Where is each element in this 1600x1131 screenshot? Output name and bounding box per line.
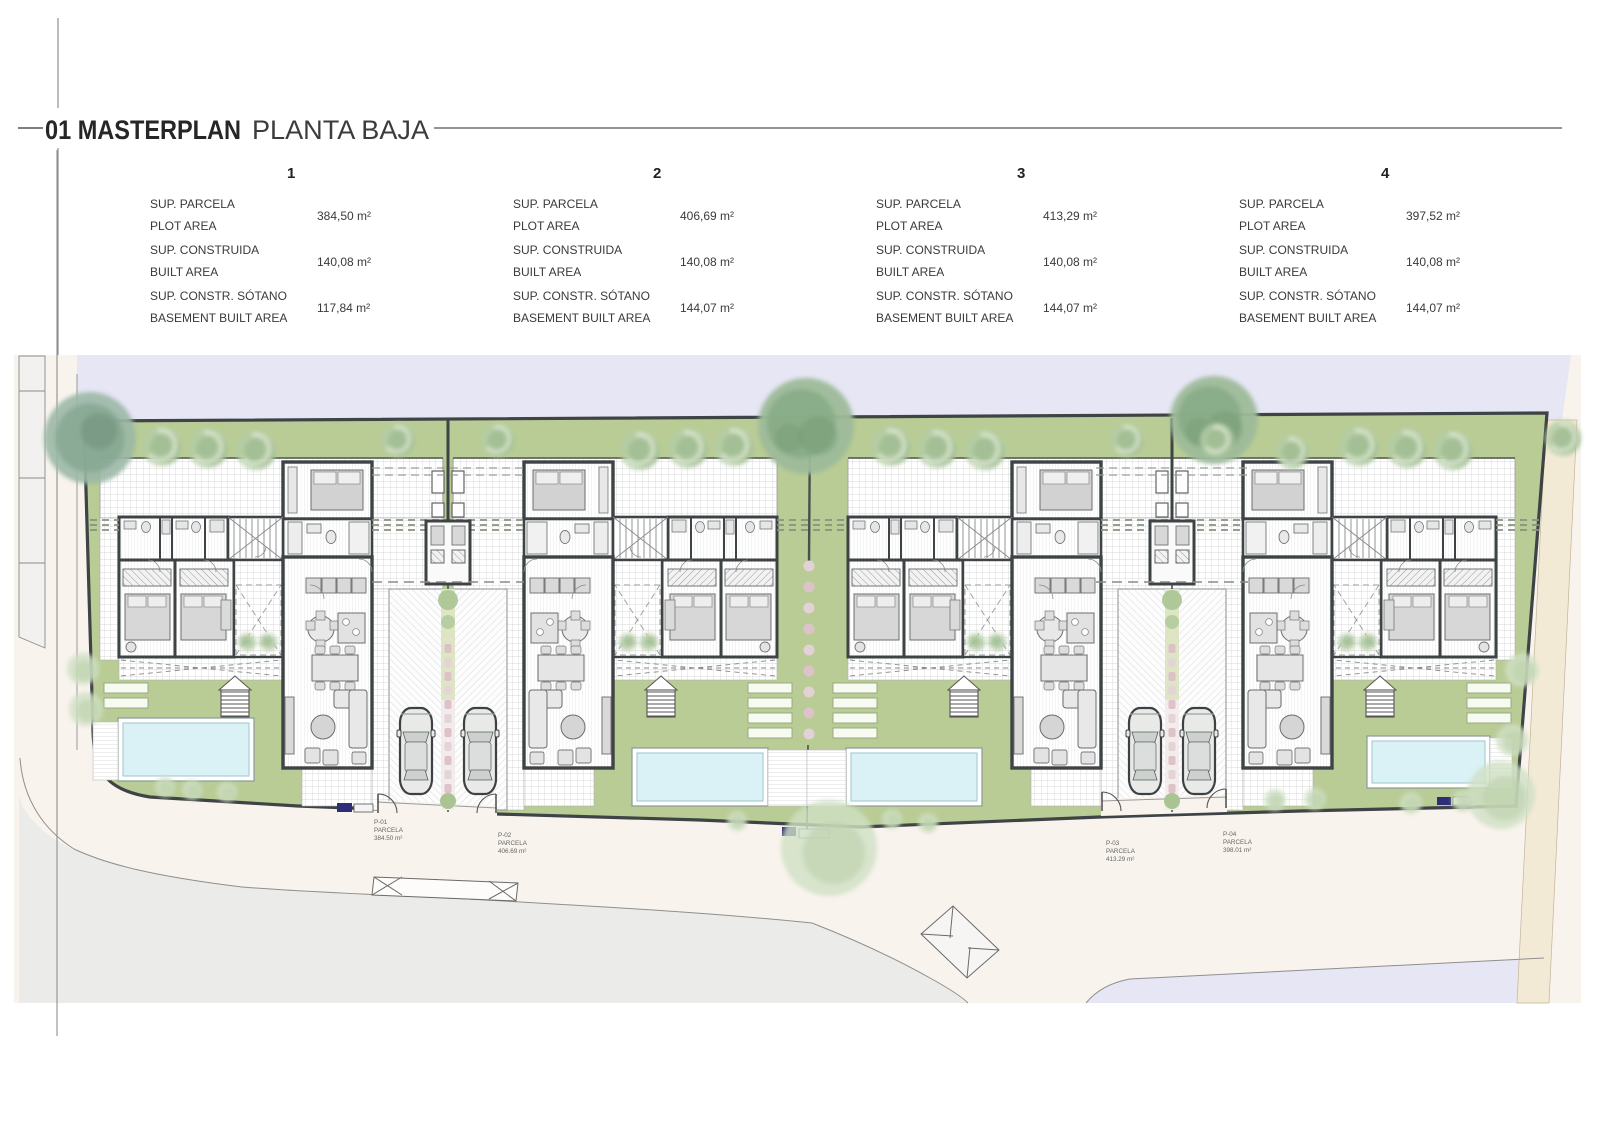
svg-text:SUP. PARCELA: SUP. PARCELA (513, 197, 598, 211)
svg-text:PARCELA: PARCELA (374, 827, 404, 834)
svg-text:SUP. CONSTR. SÓTANO: SUP. CONSTR. SÓTANO (876, 288, 1013, 303)
svg-text:413,29 m²: 413,29 m² (1043, 209, 1097, 223)
svg-text:SUP. CONSTRUIDA: SUP. CONSTRUIDA (150, 243, 259, 257)
svg-text:1: 1 (287, 165, 295, 182)
svg-text:SUP. CONSTR. SÓTANO: SUP. CONSTR. SÓTANO (150, 288, 287, 303)
svg-text:BASEMENT BUILT AREA: BASEMENT BUILT AREA (1239, 311, 1376, 325)
svg-text:413.29 m²: 413.29 m² (1106, 856, 1134, 863)
svg-text:SUP. CONSTR. SÓTANO: SUP. CONSTR. SÓTANO (513, 288, 650, 303)
svg-text:144,07 m²: 144,07 m² (1406, 301, 1460, 315)
svg-text:BUILT AREA: BUILT AREA (876, 265, 944, 279)
svg-text:BASEMENT BUILT AREA: BASEMENT BUILT AREA (150, 311, 287, 325)
svg-text:140,08 m²: 140,08 m² (680, 255, 734, 269)
svg-text:SUP. CONSTRUIDA: SUP. CONSTRUIDA (1239, 243, 1348, 257)
svg-text:PLOT AREA: PLOT AREA (1239, 219, 1305, 233)
svg-text:BUILT AREA: BUILT AREA (1239, 265, 1307, 279)
svg-text:397,52 m²: 397,52 m² (1406, 209, 1460, 223)
svg-text:117,84 m²: 117,84 m² (317, 301, 370, 315)
svg-text:P-02: P-02 (498, 832, 512, 839)
svg-text:2: 2 (653, 165, 661, 182)
svg-text:01 MASTERPLAN: 01 MASTERPLAN (45, 115, 241, 145)
svg-text:384,50 m²: 384,50 m² (317, 209, 371, 223)
svg-text:4: 4 (1381, 165, 1390, 182)
svg-text:144,07 m²: 144,07 m² (1043, 301, 1097, 315)
svg-text:BUILT AREA: BUILT AREA (150, 265, 218, 279)
svg-text:PLOT AREA: PLOT AREA (513, 219, 579, 233)
svg-text:406,69 m²: 406,69 m² (680, 209, 734, 223)
svg-text:PLOT AREA: PLOT AREA (876, 219, 942, 233)
svg-text:140,08 m²: 140,08 m² (1406, 255, 1460, 269)
svg-text:BASEMENT BUILT AREA: BASEMENT BUILT AREA (513, 311, 650, 325)
svg-text:140,08 m²: 140,08 m² (317, 255, 371, 269)
svg-text:SUP. CONSTRUIDA: SUP. CONSTRUIDA (513, 243, 622, 257)
svg-text:144,07 m²: 144,07 m² (680, 301, 734, 315)
svg-text:P-01: P-01 (374, 819, 388, 826)
svg-text:SUP. PARCELA: SUP. PARCELA (876, 197, 961, 211)
svg-text:PARCELA: PARCELA (1106, 848, 1136, 855)
svg-text:BUILT AREA: BUILT AREA (513, 265, 581, 279)
svg-text:SUP. CONSTR. SÓTANO: SUP. CONSTR. SÓTANO (1239, 288, 1376, 303)
svg-text:140,08 m²: 140,08 m² (1043, 255, 1097, 269)
svg-text:398.01 m²: 398.01 m² (1223, 847, 1251, 854)
svg-text:PLANTA BAJA: PLANTA BAJA (252, 115, 429, 145)
svg-text:3: 3 (1017, 165, 1025, 182)
svg-text:PLOT AREA: PLOT AREA (150, 219, 216, 233)
svg-text:P-04: P-04 (1223, 831, 1237, 838)
svg-text:406.69 m²: 406.69 m² (498, 848, 526, 855)
svg-text:SUP. PARCELA: SUP. PARCELA (1239, 197, 1324, 211)
svg-text:BASEMENT BUILT AREA: BASEMENT BUILT AREA (876, 311, 1013, 325)
svg-text:SUP. CONSTRUIDA: SUP. CONSTRUIDA (876, 243, 985, 257)
svg-text:PARCELA: PARCELA (1223, 839, 1253, 846)
svg-text:PARCELA: PARCELA (498, 840, 528, 847)
svg-text:SUP. PARCELA: SUP. PARCELA (150, 197, 235, 211)
svg-text:384.50 m²: 384.50 m² (374, 835, 402, 842)
svg-text:P-03: P-03 (1106, 840, 1120, 847)
